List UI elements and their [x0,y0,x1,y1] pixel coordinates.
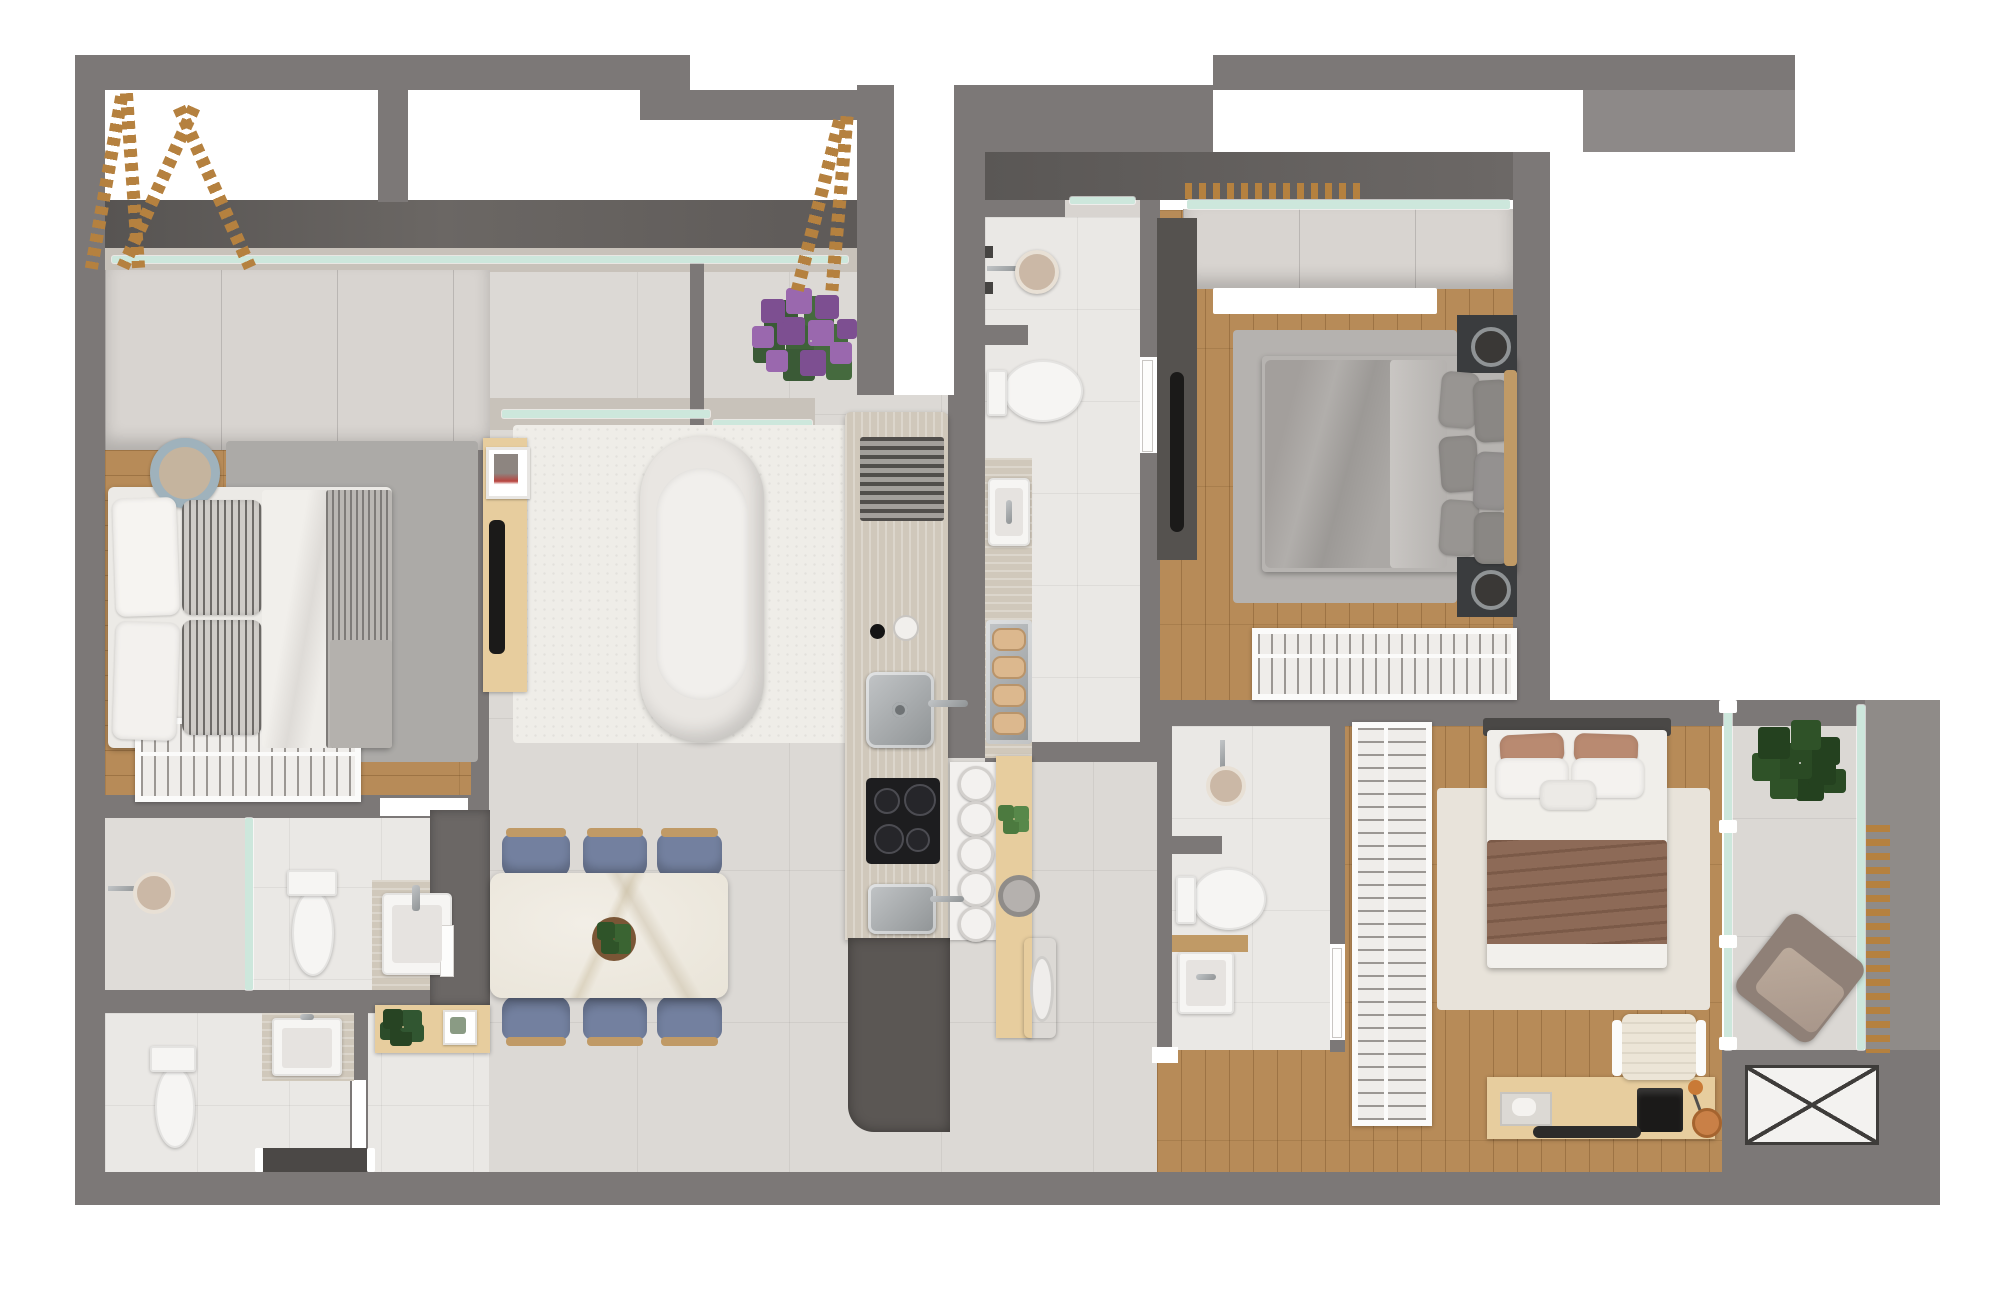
wall-top-middle [954,85,1213,152]
rolled-towel-3 [992,684,1026,707]
bath1-shower-zone [105,818,245,990]
wall-outer-top-left [75,55,690,90]
wall-bathroom3-left [1157,726,1172,1047]
bedroom2-closet-glass [1187,200,1510,209]
wall-bathroom3-stub [1172,836,1222,854]
wall-bathroom2-top-a [985,200,1065,217]
dining-chair-top-2 [583,834,647,878]
bedroom1-closet-row [105,270,490,450]
wall-entry-left [857,85,894,395]
bar-counter-plant [1013,818,1015,820]
balcony-glass-post-4 [1719,1037,1737,1050]
balcony-glass-inner [1724,705,1732,1050]
dining-chair-top-1-frame [506,828,566,837]
bed1-pillow-white-2 [112,621,180,741]
burner-2 [904,784,936,816]
entrance-door-leaf [263,1148,367,1172]
rolled-towel-4 [992,712,1026,735]
kitchen-faucet-2 [930,896,964,902]
bed3-pillow-small [1540,780,1596,810]
tv-screen-bedroom2 [1170,372,1184,532]
dining-chair-top-3 [657,834,722,878]
bathroom3-door-leaf [1332,948,1342,1038]
dining-chair-bottom-3-frame [661,1037,718,1046]
bath2-faucet [1006,500,1012,524]
dining-chair-top-2-frame [587,828,643,837]
bedroom2-wardrobe [1252,628,1517,700]
kitchen-base-cabinet [848,938,950,1132]
bath2-toilet-bowl [1003,360,1083,422]
lavabo-toilet-tank [150,1046,196,1072]
desk-laptop [1637,1088,1683,1132]
desk-keyboard-tray [1533,1126,1641,1138]
wall-top-sliver [640,90,857,120]
bath2-valve-1 [985,246,993,258]
bed1-pillow-striped-1 [182,500,262,615]
kitchen-sink-2 [868,884,936,934]
dining-chair-top-3-frame [661,828,718,837]
wall-bathroom2-stub [985,325,1028,345]
office-chair-seat [1622,1014,1696,1080]
kitchen-vent-louver [860,437,944,521]
bedroom3-tall-wardrobe [1352,722,1432,1126]
bath1-faucet [412,885,420,911]
balcony-glass-post-2 [1719,820,1737,833]
bath2-shower-head [1015,250,1059,294]
table-plant [613,938,615,940]
kitchen-faucet-1 [928,700,968,707]
bedroom2-wardrobe-rail [1258,654,1511,658]
bedroom2-balcony-slats [1185,183,1365,199]
bath3-faucet [1196,974,1216,980]
office-chair-arm-left [1612,1020,1622,1076]
bathroom1-shower-screen [245,818,253,990]
bedroom2-window-sill [1213,288,1437,314]
bath1-toilet-bowl [292,890,334,976]
bath3-toilet-bowl [1192,868,1266,930]
console-plant [402,1026,404,1028]
bed1-sheet-fold [262,490,332,748]
sink-lid-handle [892,702,908,718]
tv-screen-living [489,520,505,654]
bed1-pillow-white-1 [112,497,180,617]
desk-lamp-base [1692,1108,1722,1138]
dining-chair-bottom-1 [502,996,570,1040]
balcony-glass-outer [1857,705,1865,1050]
dining-chair-top-1 [502,834,570,878]
rolled-towel-1 [992,628,1026,651]
dining-chair-bottom-3 [657,996,722,1040]
wall-window-mullion [378,90,408,202]
wall-bathroom2-top-b [1140,200,1160,217]
service-xbox [1745,1065,1879,1145]
bar-stool-1 [958,766,994,802]
living-art-image [494,454,518,486]
leaning-canvas [440,925,454,977]
wall-top-right-fill [1583,90,1795,152]
entrance-door-jamb-left [255,1148,263,1172]
entrance-door-jamb-right [367,1148,375,1172]
balcony-glass-post-1 [1719,700,1737,713]
bedroom3-wardrobe-rail [1384,728,1388,1120]
floor-plan [0,0,2000,1290]
bath1-shower-head [133,872,175,914]
bar-counter-pot [998,875,1040,917]
terrace-glass-track [112,256,848,263]
lavabo-sink-basin [282,1028,332,1068]
bath1-sink-basin [392,905,442,963]
living-sofa-seat [656,468,748,700]
wall-outer-top-right [1213,55,1795,90]
bath3-sink-basin [1186,960,1226,1006]
bed3-sheet-ruffle [1487,944,1667,968]
console-tray-item [450,1017,466,1034]
nightstand-bottom-candle [1471,570,1511,610]
closet-niche-glass [1070,197,1135,204]
nightstand-top-candle [1471,327,1511,367]
burner-4 [906,828,930,852]
bedroom3-entry-threshold [1152,1047,1178,1063]
bar-stool-5 [958,906,994,942]
balcony-plant [1799,762,1801,764]
bedroom1-wardrobe-rail [141,752,355,756]
bedroom2-closet [1183,209,1513,289]
salt-mill [893,615,919,641]
bath3-shower-head [1206,766,1246,806]
wall-outer-bottom [75,1172,1940,1205]
burner-1 [874,788,900,814]
dining-chair-bottom-2 [583,996,647,1040]
desk-lamp-head [1688,1080,1703,1095]
dining-chair-bottom-2-frame [587,1037,643,1046]
office-chair-arm-right [1696,1020,1706,1076]
wall-bedroom2-right [1513,152,1550,700]
bar-stool-4 [958,871,994,907]
bath3-vanity-shelf [1172,935,1248,952]
balcony-glass-post-3 [1719,935,1737,948]
bed1-blanket-corner [330,640,392,748]
bath3-toilet-tank [1176,876,1196,924]
lavabo-faucet [300,1014,314,1020]
bath2-toilet-tank [987,370,1007,416]
dining-chair-bottom-1-frame [506,1037,566,1046]
rolled-towel-2 [992,656,1026,679]
bed2-duvet [1265,360,1395,568]
bar-stool-3 [958,836,994,872]
corridor-plant-flowers [810,340,812,342]
bathroom2-door-leaf [1142,360,1153,452]
corridor-glass-a [502,410,710,418]
balcony-slat-screen [1866,825,1890,1053]
entry-door-gap [894,85,954,395]
burner-3 [874,824,904,854]
lavabo-door-threshold [352,1080,366,1150]
bar-stool-2 [958,801,994,837]
wall-closet-end [690,262,704,450]
bed2-headboard [1504,370,1517,566]
pepper-grinder [870,624,885,639]
bed3-duvet-brown [1487,840,1667,950]
bed1-pillow-striped-2 [182,620,262,735]
bath1-toilet-tank [287,870,337,896]
desk-book-sculpture [1512,1098,1536,1116]
lavabo-toilet-bowl [155,1066,195,1148]
washer-door-ring [1030,956,1054,1022]
bath2-valve-2 [985,282,993,294]
